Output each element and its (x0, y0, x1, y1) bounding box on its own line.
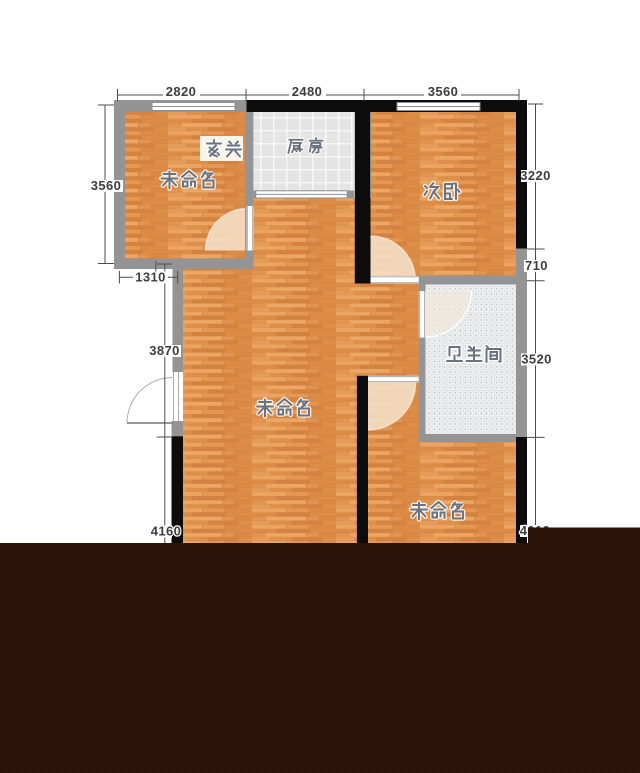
svg-text:4160: 4160 (151, 524, 182, 539)
svg-text:2820: 2820 (166, 84, 197, 99)
svg-text:3560: 3560 (428, 84, 459, 99)
svg-text:710: 710 (525, 258, 548, 273)
svg-text:3520: 3520 (521, 352, 552, 367)
svg-text:1310: 1310 (135, 270, 166, 285)
svg-text:3220: 3220 (520, 168, 551, 183)
svg-text:2480: 2480 (292, 84, 323, 99)
svg-text:3560: 3560 (91, 178, 122, 193)
svg-text:3870: 3870 (149, 343, 180, 358)
